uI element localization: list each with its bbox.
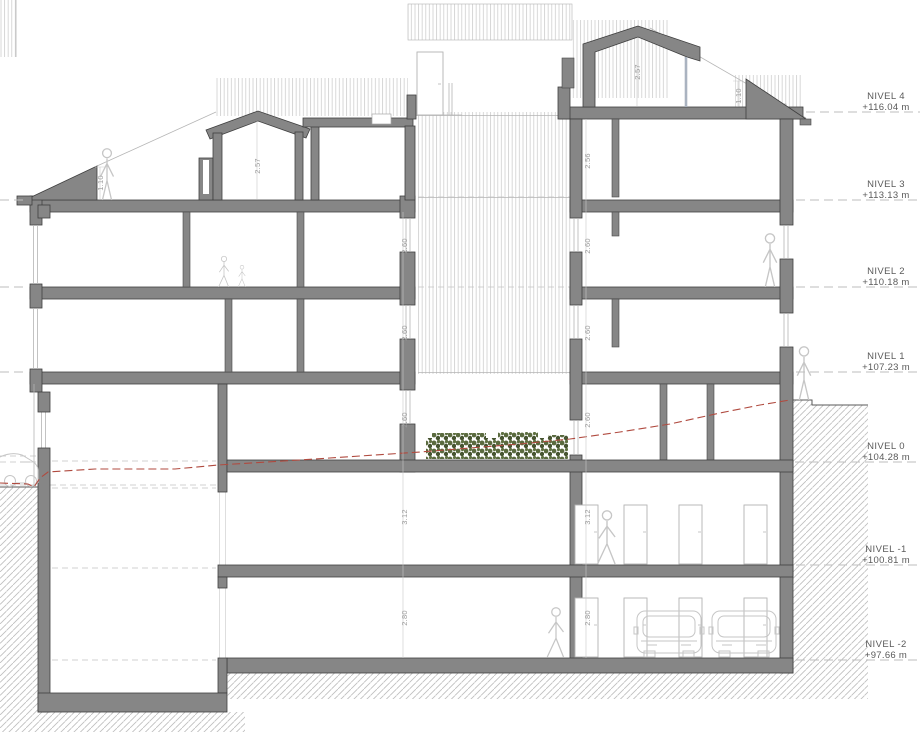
level-label-nivel-minus-1: NIVEL -1 +100.81 m: [862, 544, 910, 566]
person-figure: [238, 265, 245, 287]
dim-label: 2.80: [400, 610, 409, 625]
dim-label: 2.56: [583, 153, 592, 168]
dim-label: 2.60: [400, 412, 409, 427]
svg-text:NIVEL 4: NIVEL 4: [867, 91, 905, 102]
dim-label: 3.12: [583, 509, 592, 524]
svg-text:+97.66 m: +97.66 m: [865, 650, 907, 661]
level-label-nivel-0: NIVEL 0 +104.28 m: [862, 441, 910, 463]
basement-doors-level-2: [575, 598, 767, 657]
level-label-nivel-1: NIVEL 1 +107.23 m: [862, 351, 910, 373]
person-figure: [763, 234, 777, 287]
svg-text:+110.18 m: +110.18 m: [862, 277, 909, 288]
dim-label: 2.60: [583, 325, 592, 340]
dim-label: 1.10: [96, 175, 105, 190]
person-figure: [598, 511, 616, 564]
person-figure: [101, 149, 114, 200]
dim-label: 2.60: [583, 412, 592, 427]
level-label-nivel-minus-2: NIVEL -2 +97.66 m: [865, 639, 907, 661]
section-drawing-stage: 1.10 2.57 2.57 1.10 2.56 2.60 2.60 2.60 …: [0, 0, 920, 732]
svg-text:+100.81 m: +100.81 m: [862, 555, 910, 566]
street-car-icon: [0, 454, 38, 487]
left-building: [17, 95, 416, 712]
level-label-nivel-3: NIVEL 3 +113.13 m: [862, 179, 909, 201]
dim-label: 2.57: [253, 158, 262, 173]
person-figure: [547, 608, 563, 657]
basement-doors-level-1: [575, 505, 767, 564]
svg-text:NIVEL 1: NIVEL 1: [867, 351, 905, 362]
building-section-drawing: 1.10 2.57 2.57 1.10 2.56 2.60 2.60 2.60 …: [0, 0, 920, 732]
level-label-nivel-2: NIVEL 2 +110.18 m: [862, 266, 909, 288]
dim-label: 2.80: [583, 610, 592, 625]
svg-text:NIVEL 3: NIVEL 3: [867, 179, 905, 190]
dim-label: 2.60: [583, 238, 592, 253]
dim-label: 2.57: [633, 64, 642, 79]
person-figure: [219, 256, 229, 287]
level-label-nivel-4: NIVEL 4 +116.04 m: [862, 91, 909, 113]
level-labels: NIVEL 4 +116.04 m NIVEL 3 +113.13 m NIVE…: [862, 91, 910, 661]
dim-label: 2.60: [400, 238, 409, 253]
svg-text:+107.23 m: +107.23 m: [862, 362, 910, 373]
dim-label: 2.60: [400, 325, 409, 340]
svg-text:+104.28 m: +104.28 m: [862, 452, 910, 463]
svg-text:NIVEL -2: NIVEL -2: [865, 639, 906, 650]
svg-text:NIVEL -1: NIVEL -1: [865, 544, 906, 555]
terrain-line: [0, 400, 790, 487]
dim-label: 3.12: [400, 509, 409, 524]
svg-text:+113.13 m: +113.13 m: [862, 190, 909, 201]
svg-text:NIVEL 2: NIVEL 2: [867, 266, 905, 277]
person-figure: [797, 347, 811, 400]
dim-label: 1.10: [734, 88, 743, 103]
svg-text:+116.04 m: +116.04 m: [862, 102, 909, 113]
roof-access-door: [417, 52, 462, 115]
svg-text:NIVEL 0: NIVEL 0: [867, 441, 905, 452]
